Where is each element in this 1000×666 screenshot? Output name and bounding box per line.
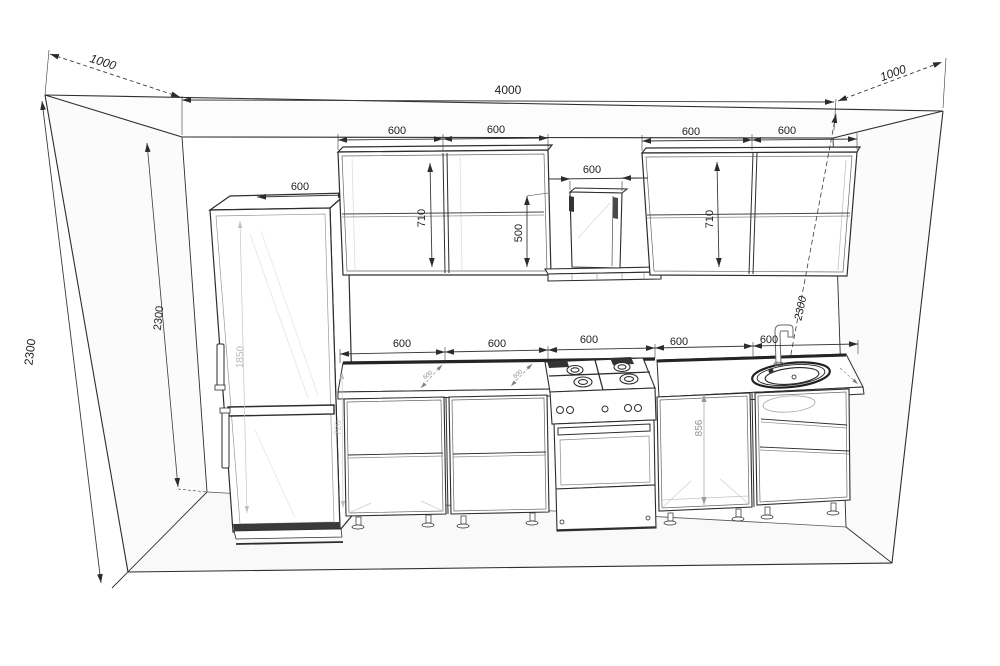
dim-room-width: 4000 bbox=[495, 83, 522, 97]
fridge bbox=[210, 193, 355, 544]
dim-hood-width: 600 bbox=[583, 164, 601, 176]
dim-base-height: 856 bbox=[694, 419, 705, 436]
base-cabinet-2 bbox=[446, 395, 549, 528]
dim-upper-height-left: 710 bbox=[416, 209, 428, 227]
dim-base-2: 600 bbox=[488, 338, 506, 350]
dim-base-4: 600 bbox=[670, 336, 688, 348]
dim-base-1: 600 bbox=[393, 338, 411, 350]
sink-cabinet bbox=[752, 389, 850, 519]
dim-room-height: 2300 bbox=[21, 338, 38, 367]
dim-upper-height-right: 710 bbox=[704, 210, 716, 228]
dim-base-5: 600 bbox=[760, 334, 778, 346]
dim-fridge-inner-height: 1850 bbox=[235, 345, 247, 368]
dim-inner-height: 2300 bbox=[152, 305, 166, 331]
dim-depth-left: 1000 bbox=[88, 51, 118, 73]
kitchen-elevation-drawing: 1000 4000 1000 2300 2300 1850 600 bbox=[0, 0, 1000, 666]
dim-hood-space: 500 bbox=[513, 224, 525, 242]
stove bbox=[545, 357, 656, 531]
base-cabinet-1 bbox=[344, 397, 446, 529]
dim-carcass-height: 720 bbox=[333, 420, 343, 435]
dim-upper-right-2: 600 bbox=[778, 125, 796, 137]
wall-cabinets-left bbox=[338, 145, 552, 275]
dim-upper-left-2: 600 bbox=[487, 124, 505, 136]
dim-base-3: 600 bbox=[580, 334, 598, 346]
base-cabinet-3 bbox=[657, 393, 752, 525]
drawing-canvas: 1000 4000 1000 2300 2300 1850 600 bbox=[0, 0, 1000, 666]
dim-upper-right-1: 600 bbox=[682, 126, 700, 138]
wall-cabinets-right bbox=[642, 147, 860, 276]
faucet-hole bbox=[769, 369, 774, 374]
dim-upper-left-1: 600 bbox=[388, 125, 406, 137]
dim-fridge-width: 600 bbox=[291, 181, 309, 193]
